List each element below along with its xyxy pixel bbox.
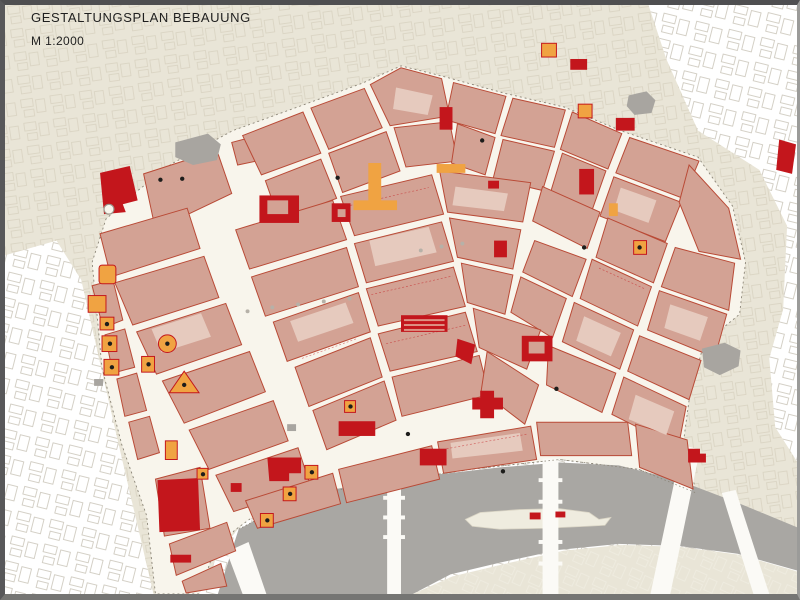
scale-label: M 1:2000 (31, 34, 251, 48)
page-title: GESTALTUNGSPLAN BEBAUUNG (31, 10, 251, 25)
title-block: GESTALTUNGSPLAN BEBAUUNG M 1:2000 (31, 10, 251, 48)
map-canvas (5, 5, 797, 594)
plan-sheet: GESTALTUNGSPLAN BEBAUUNG M 1:2000 (0, 0, 800, 600)
